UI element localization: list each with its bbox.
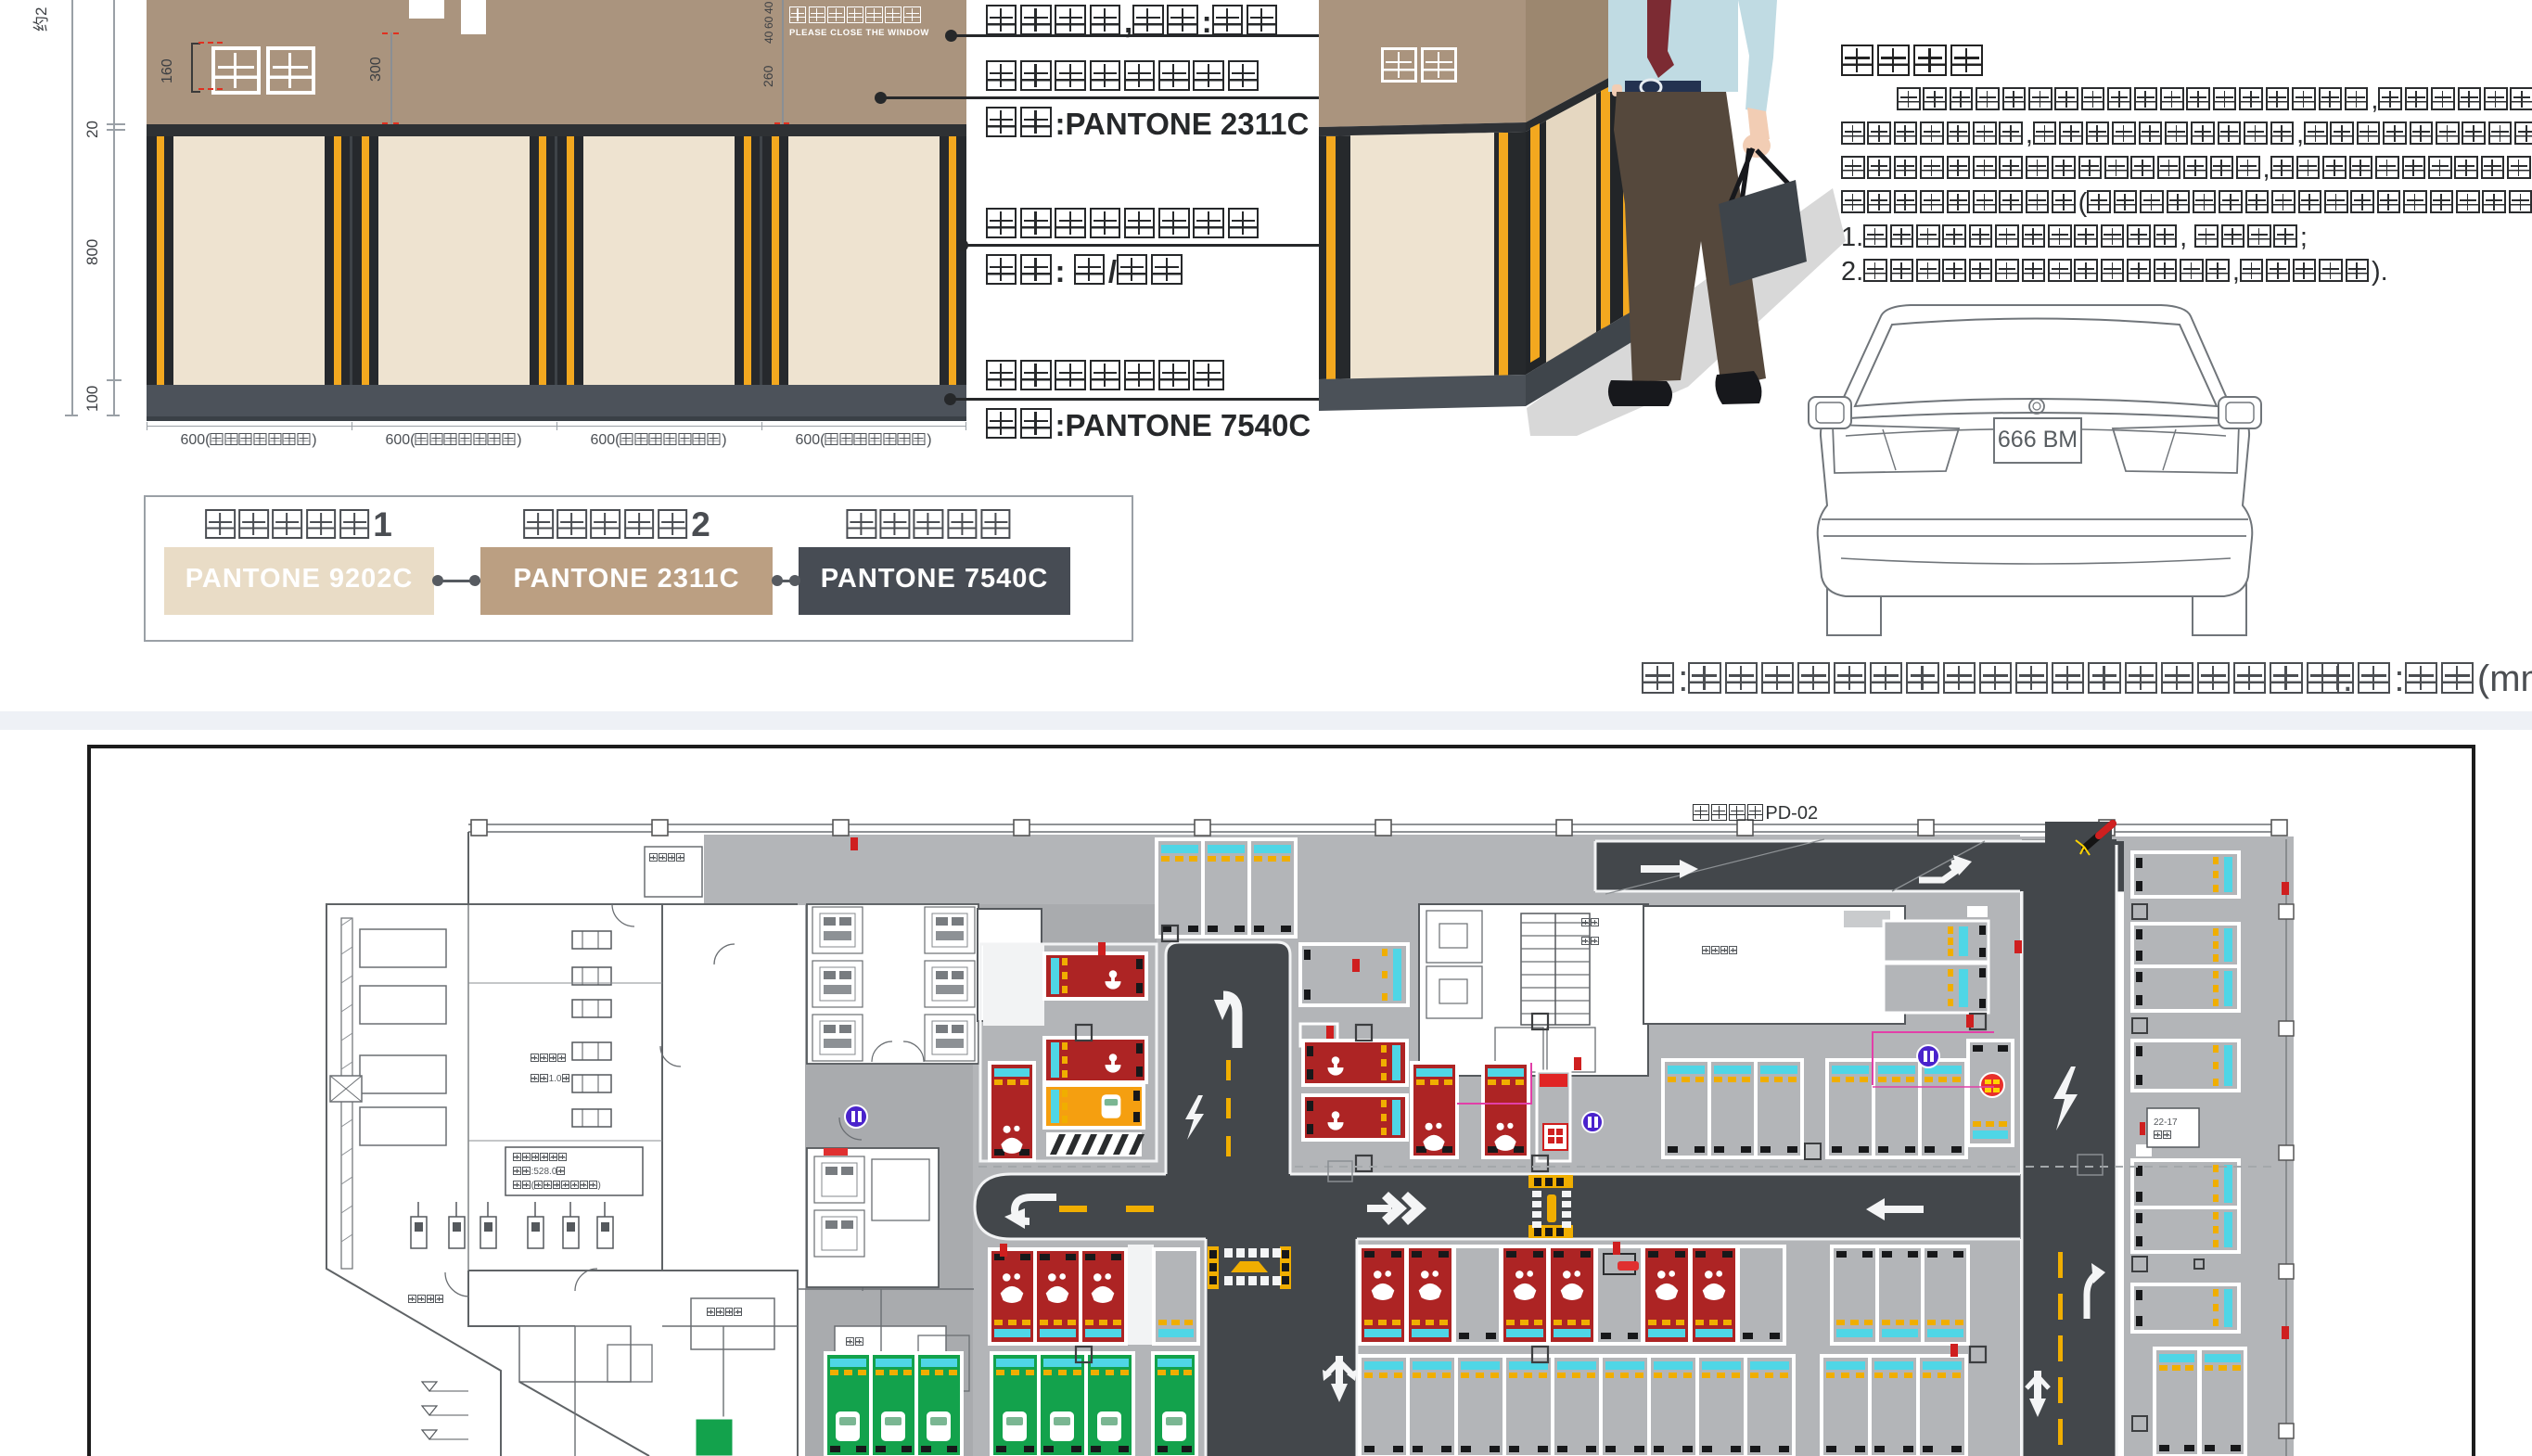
svg-text:666 BM: 666 BM xyxy=(1998,427,2078,453)
